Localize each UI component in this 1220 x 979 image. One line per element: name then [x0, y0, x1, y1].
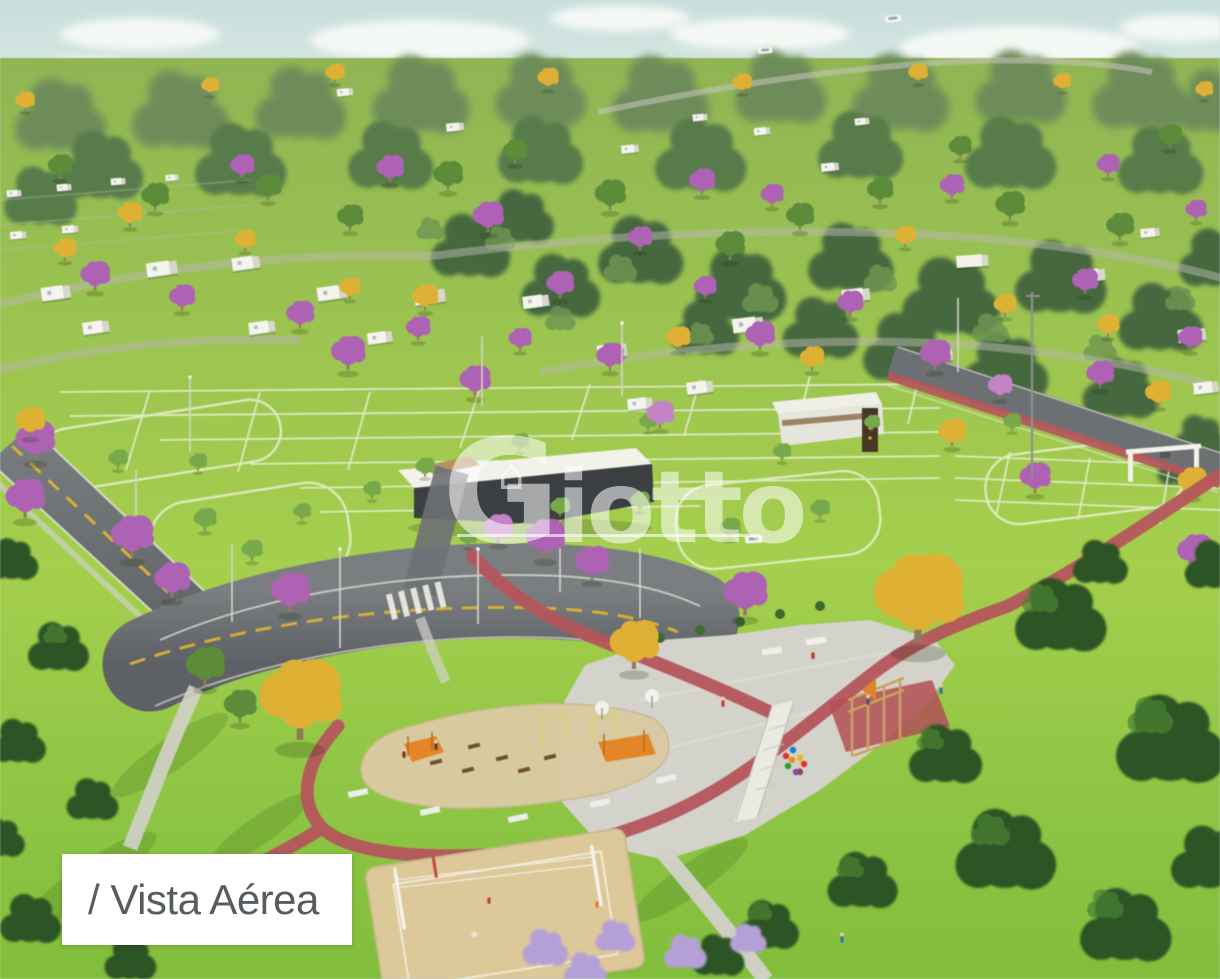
caption-box: / Vista Aérea [62, 854, 352, 945]
caption-text: / Vista Aérea [62, 876, 319, 924]
render-scene [0, 0, 1220, 979]
aerial-view-screenshot: Giotto ⌂ / Vista Aérea [0, 0, 1220, 979]
shed [956, 254, 989, 270]
